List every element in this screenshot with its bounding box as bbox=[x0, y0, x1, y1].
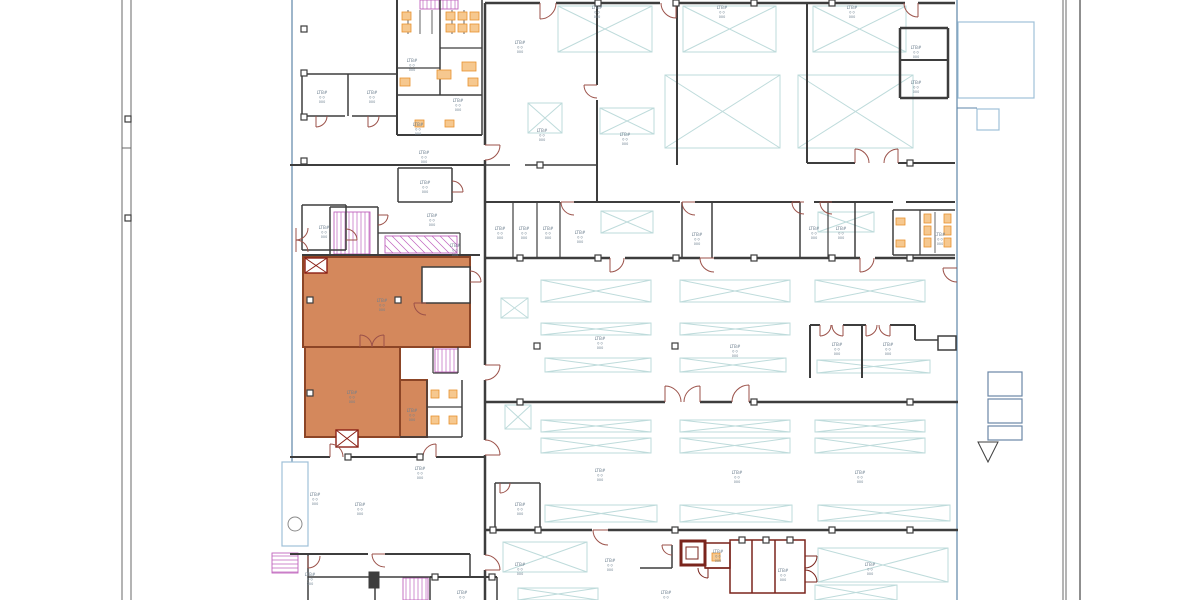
stair-hatch-outline bbox=[334, 212, 370, 254]
room-tag: 0 0 bbox=[429, 219, 434, 223]
room-tag: 0 0 bbox=[834, 348, 839, 352]
red-room-wall bbox=[686, 547, 698, 559]
room-tag: LTB# bbox=[730, 344, 741, 349]
canopy-rect bbox=[282, 462, 308, 546]
door-swing bbox=[316, 116, 327, 127]
column-marker bbox=[751, 255, 757, 261]
room-tag: 0 0 bbox=[867, 568, 872, 572]
room-tag: LTB# bbox=[809, 226, 820, 231]
ramp-hatch bbox=[385, 237, 401, 253]
door-swing bbox=[500, 483, 510, 493]
plumbing-fixture bbox=[468, 78, 478, 86]
column-marker bbox=[672, 527, 678, 533]
room-tag: LTB# bbox=[515, 562, 526, 567]
room-tag: 0 0 bbox=[321, 231, 326, 235]
room-tag: LTB# bbox=[415, 466, 426, 471]
room-tag: 000 bbox=[415, 132, 421, 136]
room-tag: 0 0 bbox=[319, 96, 324, 100]
ramp-hatch bbox=[424, 236, 441, 253]
room-tag: LTB# bbox=[407, 408, 418, 413]
red-door-swing bbox=[698, 568, 708, 578]
column-marker bbox=[307, 297, 313, 303]
room-tag: LTB# bbox=[495, 226, 506, 231]
room-tag: 0 0 bbox=[517, 568, 522, 572]
column-marker bbox=[672, 343, 678, 349]
room-tag: 0 0 bbox=[849, 11, 854, 15]
red-room-wall bbox=[730, 540, 805, 593]
room-tag: 000 bbox=[811, 236, 817, 240]
room-tag: 000 bbox=[497, 236, 503, 240]
door-swing bbox=[470, 271, 481, 282]
sheet-border-lines bbox=[122, 0, 1080, 600]
loading-dock-layer bbox=[978, 372, 1022, 462]
door-swing bbox=[368, 116, 379, 127]
plumbing-fixture bbox=[924, 214, 931, 223]
room-tag: LTB# bbox=[717, 5, 728, 10]
room-tag: 0 0 bbox=[577, 236, 582, 240]
plumbing-fixture bbox=[446, 24, 455, 32]
column-marker bbox=[907, 527, 913, 533]
plumbing-fixture bbox=[924, 238, 931, 247]
room-tag: 000 bbox=[379, 308, 385, 312]
room-tag: 000 bbox=[307, 582, 313, 586]
room-tag: LTB# bbox=[427, 213, 438, 218]
column-marker bbox=[417, 454, 423, 460]
column-marker bbox=[517, 255, 523, 261]
room-tag: LTB# bbox=[317, 90, 328, 95]
column-marker bbox=[489, 574, 495, 580]
room-tag: LTB# bbox=[319, 225, 330, 230]
room-tag: 0 0 bbox=[780, 574, 785, 578]
room-tag: 000 bbox=[834, 352, 840, 356]
dock-leveler bbox=[988, 399, 1022, 423]
room-tag: LTB# bbox=[453, 98, 464, 103]
room-tag: 000 bbox=[734, 480, 740, 484]
column-marker bbox=[907, 255, 913, 261]
room-tag: LTB# bbox=[543, 226, 554, 231]
canopy-rect bbox=[977, 109, 999, 130]
room-tag: 0 0 bbox=[663, 596, 668, 600]
room-tag: 000 bbox=[594, 15, 600, 19]
room-tag: 0 0 bbox=[539, 134, 544, 138]
room-tag: LTB# bbox=[595, 468, 606, 473]
room-tag: 000 bbox=[867, 572, 873, 576]
door-swing bbox=[662, 545, 672, 555]
room-tag: 0 0 bbox=[594, 11, 599, 15]
room-tag: 0 0 bbox=[459, 596, 464, 600]
room-tag: 0 0 bbox=[937, 238, 942, 242]
room-tag: 0 0 bbox=[497, 232, 502, 236]
column-marker bbox=[907, 160, 913, 166]
stair-hatch-outline bbox=[403, 578, 428, 600]
plumbing-fixture bbox=[944, 214, 951, 223]
plumbing-fixture bbox=[431, 390, 439, 398]
column-marker bbox=[301, 70, 307, 76]
room-tag: 000 bbox=[597, 478, 603, 482]
column-marker bbox=[751, 0, 757, 6]
room-tag: LTB# bbox=[605, 558, 616, 563]
door-swing bbox=[423, 444, 436, 457]
room-tag: 000 bbox=[838, 236, 844, 240]
room-tag: 0 0 bbox=[913, 51, 918, 55]
plumbing-fixture bbox=[470, 12, 479, 20]
room-tag: 000 bbox=[357, 512, 363, 516]
ramp-hatch bbox=[408, 236, 425, 253]
room-tag: LTB# bbox=[661, 590, 672, 595]
room-tag: LTB# bbox=[911, 80, 922, 85]
ramp-hatch bbox=[400, 236, 417, 253]
room-tag: 000 bbox=[422, 190, 428, 194]
canopy-rect bbox=[958, 22, 1034, 98]
room-tag: LTB# bbox=[450, 243, 461, 248]
room-tag: 000 bbox=[780, 578, 786, 582]
room-tag: 000 bbox=[429, 223, 435, 227]
rack-layer bbox=[501, 6, 950, 600]
room-tag: 0 0 bbox=[409, 414, 414, 418]
room-tag: LTB# bbox=[457, 590, 468, 595]
room-tag: 000 bbox=[694, 242, 700, 246]
room-tag: LTB# bbox=[519, 226, 530, 231]
column-marker bbox=[537, 162, 543, 168]
room-tag: LTB# bbox=[832, 342, 843, 347]
ramp-hatch bbox=[385, 245, 393, 253]
room-tag: 000 bbox=[719, 15, 725, 19]
room-tag: LTB# bbox=[310, 492, 321, 497]
room-tag: 0 0 bbox=[455, 104, 460, 108]
room-tag: 0 0 bbox=[421, 156, 426, 160]
room-tag: LTB# bbox=[713, 549, 724, 554]
room-tag: LTB# bbox=[515, 40, 526, 45]
room-tag: 0 0 bbox=[719, 11, 724, 15]
room-tag: LTB# bbox=[413, 122, 424, 127]
door-swing bbox=[593, 530, 608, 545]
room-tag: LTB# bbox=[537, 128, 548, 133]
plumbing-fixture bbox=[402, 12, 411, 20]
room-tag: 0 0 bbox=[307, 578, 312, 582]
door-swing bbox=[372, 554, 385, 567]
plumbing-fixture bbox=[924, 226, 931, 235]
column-marker bbox=[490, 527, 496, 533]
room-tag: 0 0 bbox=[517, 46, 522, 50]
room-tag: LTB# bbox=[367, 90, 378, 95]
dock-leveler bbox=[988, 372, 1022, 396]
room-tag: 0 0 bbox=[838, 232, 843, 236]
room-tag: LTB# bbox=[883, 342, 894, 347]
column-marker bbox=[673, 255, 679, 261]
room-tag: 000 bbox=[857, 480, 863, 484]
ramp-hatch bbox=[432, 236, 449, 253]
room-tag: 000 bbox=[577, 240, 583, 244]
room-tag: 0 0 bbox=[409, 64, 414, 68]
column-marker bbox=[301, 114, 307, 120]
plumbing-fixture bbox=[402, 24, 411, 32]
room-tag: 000 bbox=[607, 568, 613, 572]
room-tag: LTB# bbox=[732, 470, 743, 475]
room-tag: 000 bbox=[319, 100, 325, 104]
room-tag: 0 0 bbox=[357, 508, 362, 512]
door-swing bbox=[792, 202, 804, 214]
room-tag: 000 bbox=[715, 559, 721, 563]
room-tag: LTB# bbox=[836, 226, 847, 231]
room-tag: 0 0 bbox=[622, 138, 627, 142]
door-swing bbox=[485, 365, 500, 380]
room-tag: 0 0 bbox=[857, 476, 862, 480]
door-swing bbox=[561, 202, 574, 215]
room-tag: 0 0 bbox=[521, 232, 526, 236]
room-tag: 0 0 bbox=[545, 232, 550, 236]
room-tag: 000 bbox=[452, 253, 458, 257]
column-marker bbox=[301, 26, 307, 32]
column-circle bbox=[288, 517, 302, 531]
door-swing bbox=[308, 556, 320, 568]
door-swing bbox=[684, 386, 700, 402]
room-tag: 000 bbox=[455, 108, 461, 112]
room-tag: 000 bbox=[349, 400, 355, 404]
room-tag: 0 0 bbox=[885, 348, 890, 352]
room-tag: LTB# bbox=[515, 502, 526, 507]
plumbing-fixture bbox=[470, 24, 479, 32]
room-tag: LTB# bbox=[778, 568, 789, 573]
plumbing-fixture bbox=[437, 70, 451, 79]
room-tag: LTB# bbox=[855, 470, 866, 475]
room-tag: 000 bbox=[421, 160, 427, 164]
plumbing-fixture bbox=[449, 390, 457, 398]
room-tag: 0 0 bbox=[312, 498, 317, 502]
door-swing bbox=[346, 229, 357, 240]
room-tag: LTB# bbox=[935, 232, 946, 237]
room-tag: LTB# bbox=[419, 150, 430, 155]
plumbing-fixture bbox=[431, 416, 439, 424]
plumbing-fixture bbox=[445, 120, 454, 127]
room-tag: 0 0 bbox=[597, 342, 602, 346]
room-tag: 0 0 bbox=[517, 508, 522, 512]
column-marker bbox=[301, 158, 307, 164]
door-swing bbox=[943, 268, 957, 282]
room-tag: 0 0 bbox=[732, 350, 737, 354]
door-swing bbox=[665, 386, 681, 402]
room-tag: LTB# bbox=[692, 232, 703, 237]
column-marker bbox=[432, 574, 438, 580]
door-swing bbox=[485, 440, 500, 455]
suite-interior-room[interactable] bbox=[422, 267, 470, 303]
column-marker bbox=[535, 527, 541, 533]
room-tag: 0 0 bbox=[607, 564, 612, 568]
room-tag: 000 bbox=[521, 236, 527, 240]
door-swing bbox=[855, 149, 869, 163]
room-tag: 000 bbox=[622, 142, 628, 146]
room-tag: 000 bbox=[913, 90, 919, 94]
column-marker bbox=[673, 0, 679, 6]
room-tag: 0 0 bbox=[715, 555, 720, 559]
column-marker bbox=[907, 399, 913, 405]
column-marker bbox=[751, 399, 757, 405]
door-swing bbox=[732, 385, 749, 402]
room-tag: 000 bbox=[732, 354, 738, 358]
room-tag: 0 0 bbox=[379, 304, 384, 308]
column-marker bbox=[534, 343, 540, 349]
column-marker bbox=[125, 215, 131, 221]
column-grid-layer bbox=[125, 0, 913, 580]
room-tag: 0 0 bbox=[734, 476, 739, 480]
door-swing bbox=[820, 325, 831, 336]
door-swing bbox=[860, 258, 874, 272]
ramp-hatch bbox=[416, 236, 433, 253]
column-marker bbox=[829, 527, 835, 533]
column-marker bbox=[763, 537, 769, 543]
plumbing-fixture bbox=[896, 218, 905, 225]
room-tag: 0 0 bbox=[913, 86, 918, 90]
column-marker bbox=[345, 454, 351, 460]
plumbing-fixture bbox=[446, 12, 455, 20]
room-tag: 000 bbox=[369, 100, 375, 104]
room-tag: 000 bbox=[321, 235, 327, 239]
room-tag: LTB# bbox=[575, 230, 586, 235]
room-tag: 000 bbox=[885, 352, 891, 356]
floor-plan-canvas: LTB#0 0000LTB#0 0000LTB#0 0000LTB#0 0000… bbox=[0, 0, 1200, 600]
room-tag: LTB# bbox=[305, 572, 316, 577]
room-tag: 0 0 bbox=[417, 472, 422, 476]
door-swing bbox=[866, 325, 877, 336]
room-tag: 000 bbox=[517, 512, 523, 516]
door-swing bbox=[540, 3, 556, 19]
door-swing bbox=[378, 215, 388, 225]
room-tag: 000 bbox=[539, 138, 545, 142]
room-tag: 000 bbox=[417, 476, 423, 480]
room-tag: 0 0 bbox=[597, 474, 602, 478]
plumbing-fixture bbox=[458, 24, 467, 32]
dock-ramp-icon bbox=[978, 442, 998, 462]
door-swing bbox=[452, 181, 463, 192]
room-tag: 000 bbox=[849, 15, 855, 19]
room-tag: 000 bbox=[597, 346, 603, 350]
door-swing bbox=[884, 149, 898, 163]
room-tag: 0 0 bbox=[422, 186, 427, 190]
stair-hatch-outline bbox=[435, 349, 458, 372]
room-tag: 000 bbox=[517, 50, 523, 54]
room-tag: 0 0 bbox=[349, 396, 354, 400]
room-tag: 0 0 bbox=[369, 96, 374, 100]
plumbing-fixture bbox=[449, 416, 457, 424]
room-tag: 0 0 bbox=[694, 238, 699, 242]
room-tag: LTB# bbox=[377, 298, 388, 303]
room-tag: 0 0 bbox=[452, 249, 457, 253]
red-door-swing bbox=[805, 556, 817, 568]
column-marker bbox=[517, 399, 523, 405]
room-tag: LTB# bbox=[347, 390, 358, 395]
room-tag: 000 bbox=[913, 55, 919, 59]
room-tag: 000 bbox=[937, 242, 943, 246]
red-room-block bbox=[681, 540, 805, 593]
plumbing-fixture bbox=[944, 238, 951, 247]
door-swing bbox=[879, 325, 890, 336]
dock-leveler bbox=[988, 426, 1022, 440]
door-swing bbox=[700, 258, 714, 272]
plumbing-fixture bbox=[458, 12, 467, 20]
column-marker bbox=[125, 116, 131, 122]
room-tag: LTB# bbox=[595, 336, 606, 341]
room-tag: 000 bbox=[545, 236, 551, 240]
red-room-wall bbox=[681, 541, 705, 565]
room-tag: 000 bbox=[312, 502, 318, 506]
room-tag: 000 bbox=[517, 572, 523, 576]
plumbing-fixture bbox=[896, 240, 905, 247]
column-marker bbox=[595, 255, 601, 261]
room-tag: LTB# bbox=[407, 58, 418, 63]
wall-solid bbox=[369, 572, 379, 588]
door-swing bbox=[584, 85, 597, 98]
room-tag: LTB# bbox=[847, 5, 858, 10]
ramp-hatch bbox=[392, 236, 409, 253]
column-marker bbox=[787, 537, 793, 543]
red-door-swing bbox=[805, 570, 817, 582]
wall-fixture bbox=[938, 336, 956, 350]
room-tag: LTB# bbox=[592, 5, 603, 10]
room-tag: LTB# bbox=[620, 132, 631, 137]
room-tag: 0 0 bbox=[415, 128, 420, 132]
highlighted-suites-layer[interactable] bbox=[303, 257, 470, 447]
door-swing bbox=[832, 325, 843, 336]
room-tag: LTB# bbox=[865, 562, 876, 567]
column-marker bbox=[829, 0, 835, 6]
door-swing bbox=[682, 202, 695, 215]
column-marker bbox=[829, 255, 835, 261]
door-swing bbox=[610, 258, 624, 272]
column-marker bbox=[395, 297, 401, 303]
room-tag: LTB# bbox=[420, 180, 431, 185]
room-tag: 000 bbox=[409, 418, 415, 422]
column-marker bbox=[739, 537, 745, 543]
plumbing-fixture bbox=[400, 78, 410, 86]
door-swing bbox=[485, 555, 500, 570]
plumbing-fixture bbox=[462, 62, 476, 71]
door-swing bbox=[485, 145, 500, 160]
room-tag: 000 bbox=[409, 68, 415, 72]
room-tag: LTB# bbox=[355, 502, 366, 507]
room-tag: LTB# bbox=[911, 45, 922, 50]
column-marker bbox=[307, 390, 313, 396]
room-tag: 0 0 bbox=[811, 232, 816, 236]
